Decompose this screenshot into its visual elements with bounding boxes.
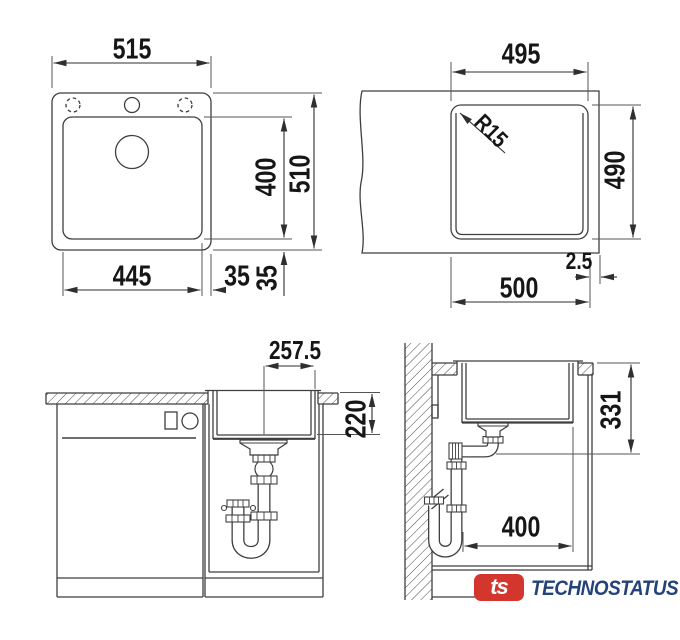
front-view-siphon	[222, 440, 288, 552]
dim-bowl-height: 400	[253, 158, 282, 197]
dim-overall-height: 510	[287, 155, 316, 194]
dim-overall-width: 515	[113, 36, 152, 65]
dim-bowl-width: 445	[113, 263, 152, 292]
dim-edge-gap-horizontal: 35	[224, 263, 250, 292]
top-view-drawing	[52, 93, 211, 250]
sink-technical-drawing: 515 510 400 445 35 35 495 R15 490 2.5 50…	[0, 0, 680, 640]
dim-drain-height: 331	[598, 391, 627, 430]
dim-outer-width: 500	[500, 275, 539, 304]
technostatus-brand-name: TECHNOSTATUS	[531, 577, 678, 601]
dim-bowl-length: 400	[502, 514, 541, 543]
dim-cutout-height: 490	[602, 151, 631, 190]
logo-ts-mark: ts	[490, 574, 508, 600]
dim-bowl-depth: 220	[343, 400, 372, 439]
technical-drawing-linework	[0, 0, 680, 640]
dim-edge-offset: 2.5	[566, 250, 593, 274]
dim-cutout-width: 495	[502, 41, 541, 70]
technostatus-logo-icon: ts	[474, 574, 524, 601]
side-view-drawing	[405, 343, 593, 600]
dim-drain-center-offset: 257.5	[269, 337, 321, 363]
dim-edge-gap-vertical: 35	[254, 265, 283, 291]
side-view-siphon	[425, 423, 509, 552]
front-view-drawing	[46, 391, 338, 598]
